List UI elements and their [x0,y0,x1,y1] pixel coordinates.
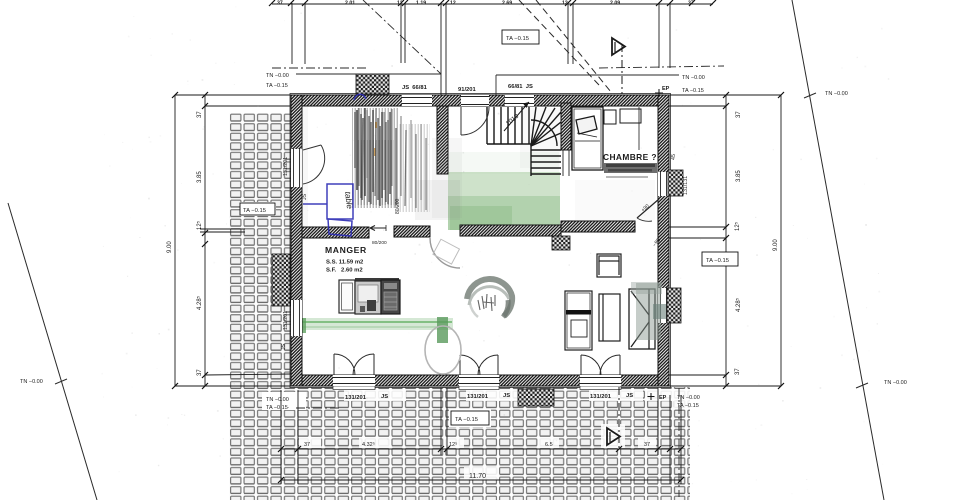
svg-text:12: 12 [397,1,403,7]
svg-text:37: 37 [688,1,694,7]
svg-text:66/81 JS: 66/81 JS [508,84,533,90]
svg-text:45: 45 [671,154,677,160]
svg-text:2.69: 2.69 [502,1,512,7]
svg-text:6.5: 6.5 [545,442,553,448]
svg-text:TN −0.00: TN −0.00 [266,73,289,79]
svg-text:131/201: 131/201 [283,157,289,176]
svg-text:37: 37 [197,111,203,118]
svg-text:9.00: 9.00 [773,239,779,251]
svg-text:JS 66/81: JS 66/81 [402,85,428,91]
svg-text:91/201: 91/201 [458,87,477,93]
svg-text:EP: EP [662,86,670,92]
svg-text:4.28⁵: 4.28⁵ [735,297,742,312]
svg-text:131/201: 131/201 [283,311,289,330]
svg-text:37: 37 [277,1,283,7]
svg-text:131/201: 131/201 [345,395,367,401]
svg-text:JS: JS [503,393,510,399]
svg-text:JS: JS [381,394,388,400]
svg-text:37: 37 [736,111,742,118]
svg-text:12⁵: 12⁵ [449,441,457,448]
svg-text:4.32⁵: 4.32⁵ [362,441,375,448]
svg-text:TN −0.00: TN −0.00 [682,75,705,81]
svg-text:2.09: 2.09 [610,1,620,7]
svg-text:MANGER: MANGER [325,245,367,255]
svg-text:TA −0.15: TA −0.15 [266,83,288,89]
svg-text:12⁵: 12⁵ [196,220,203,230]
svg-text:TA −0.15: TA −0.15 [243,208,266,214]
svg-text:TA −0.15·: TA −0.15· [266,405,290,411]
svg-text:TA −0.15: TA −0.15 [706,258,729,264]
svg-text:TA −0.15: TA −0.15 [455,417,478,423]
svg-text:11.70: 11.70 [469,473,486,480]
svg-text:TN −0.00: TN −0.00 [677,395,700,401]
svg-text:S.S. 11.59 m2: S.S. 11.59 m2 [326,260,364,266]
svg-text:JS: JS [626,393,633,399]
svg-text:131/201: 131/201 [590,394,612,400]
svg-text:37: 37 [735,368,741,375]
svg-text:12: 12 [450,1,456,7]
svg-text:TA −0.15: TA −0.15 [677,403,699,409]
svg-text:TA −0.15: TA −0.15 [506,36,529,42]
svg-text:131/201: 131/201 [467,394,489,400]
svg-text:EP: EP [659,395,667,401]
svg-text:JS: JS [281,343,287,350]
svg-text:1.19: 1.19 [416,1,426,7]
svg-text:TN −0.00: TN −0.00 [825,91,848,97]
svg-text:S.F. 2.60 m2: S.F. 2.60 m2 [326,268,363,274]
svg-text:80/200: 80/200 [395,198,401,214]
svg-text:12⁵: 12⁵ [734,221,741,231]
svg-text:TN −0.00: TN −0.00 [266,397,289,403]
svg-text:CHAMBRE ?: CHAMBRE ? [603,152,657,162]
svg-text:TA −0.15: TA −0.15 [682,88,704,94]
svg-text:131/131: 131/131 [683,176,689,195]
svg-text:37: 37 [644,442,650,448]
svg-text:2.01: 2.01 [345,1,355,7]
svg-text:37: 37 [304,442,310,448]
svg-text:3.85: 3.85 [736,170,742,182]
svg-text:4.28⁵: 4.28⁵ [196,295,203,310]
svg-text:80/200: 80/200 [372,240,387,246]
svg-text:9.00: 9.00 [167,241,173,253]
svg-text:3.85: 3.85 [197,171,203,183]
svg-text:12: 12 [562,1,568,7]
svg-text:TN −0.00: TN −0.00 [20,379,43,385]
svg-text:37: 37 [197,369,203,376]
svg-text:TN −0.00: TN −0.00 [884,380,907,386]
